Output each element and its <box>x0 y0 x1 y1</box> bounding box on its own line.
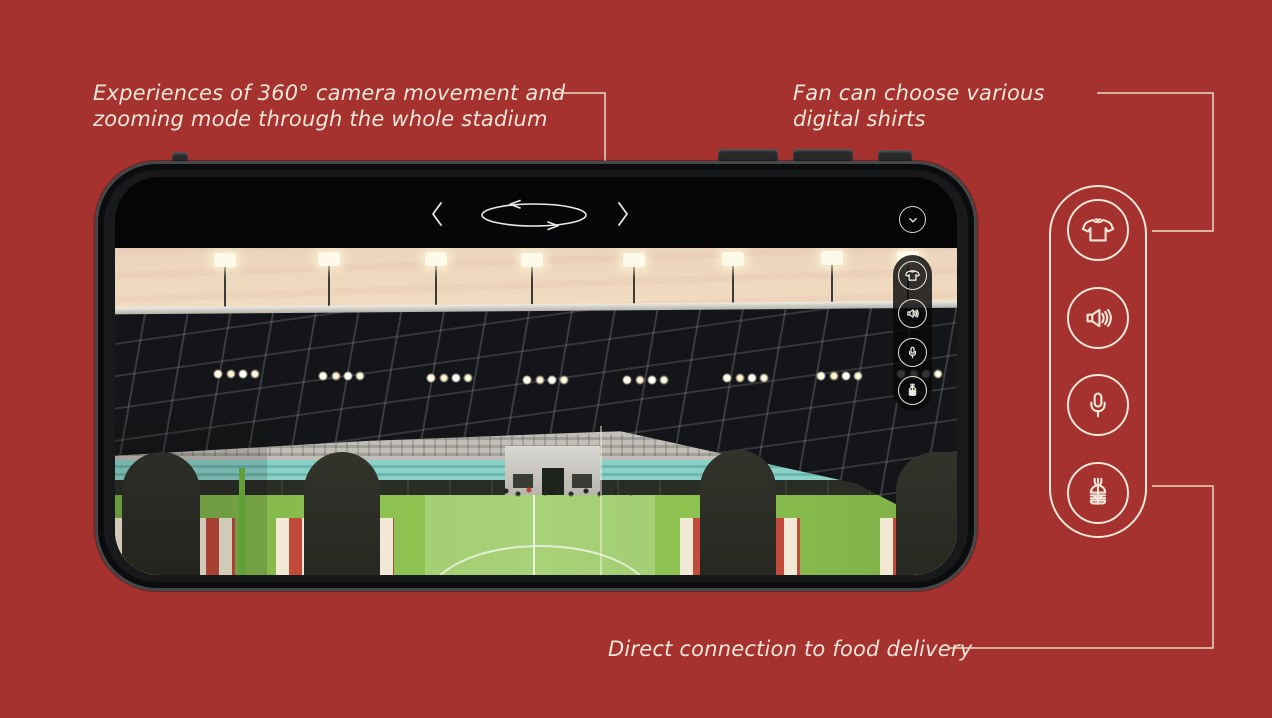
rotate-right-chevron[interactable] <box>616 200 630 228</box>
panorama-seam <box>600 426 602 575</box>
tshirt-icon <box>1079 211 1117 249</box>
burger-icon <box>904 382 921 399</box>
floodlight-lamp <box>318 252 340 266</box>
menu-item-microphone[interactable] <box>898 338 927 367</box>
floodlight-lamp <box>623 253 645 267</box>
floodlight-lamp <box>722 252 744 266</box>
microphone-icon <box>1079 386 1117 424</box>
tshirt-icon <box>904 267 921 284</box>
feature-item-food <box>1067 462 1129 524</box>
rotate-left-chevron[interactable] <box>430 200 444 228</box>
burger-icon <box>1079 474 1117 512</box>
roof-lights <box>519 374 573 386</box>
collapse-button[interactable] <box>899 206 926 233</box>
floodlight-lamp <box>821 251 843 265</box>
screen-quick-menu <box>893 255 932 411</box>
menu-item-speaker[interactable] <box>898 299 927 328</box>
menu-item-food[interactable] <box>898 376 927 405</box>
feature-item-shirt <box>1067 199 1129 261</box>
rotate-360-icon[interactable] <box>474 197 594 233</box>
floodlight-lamp <box>425 252 447 266</box>
panorama-seam <box>425 495 655 575</box>
kiosk-arch <box>700 450 776 575</box>
roof-lights <box>315 370 369 382</box>
feature-item-microphone <box>1067 374 1129 436</box>
roof-lights <box>813 370 867 382</box>
roof-lights <box>423 372 477 384</box>
annotation-camera-text: Experiences of 360° camera movement and … <box>93 80 565 133</box>
roof-lights <box>719 372 773 384</box>
phone-screen <box>115 177 957 575</box>
annotation-food-text: Direct connection to food delivery <box>608 636 972 662</box>
floodlight-lamp <box>214 253 236 267</box>
speaker-icon <box>1079 299 1117 337</box>
microphone-icon <box>904 344 921 361</box>
feature-panel <box>1049 185 1147 538</box>
speaker-icon <box>904 305 921 322</box>
phone-mockup <box>95 161 977 591</box>
panorama-seam <box>239 468 245 575</box>
menu-item-shirt[interactable] <box>898 261 927 290</box>
poster-canvas: Experiences of 360° camera movement and … <box>0 0 1272 718</box>
chevron-down-icon <box>904 211 922 229</box>
kiosk-arch <box>304 452 380 575</box>
stadium-360-view[interactable] <box>115 248 957 575</box>
feature-item-speaker <box>1067 287 1129 349</box>
roof-lights <box>619 374 673 386</box>
floodlight-lamp <box>521 253 543 267</box>
annotation-shirts-text: Fan can choose various digital shirts <box>793 80 1045 133</box>
roof-lights <box>210 368 264 380</box>
kiosk-arch <box>896 452 957 575</box>
